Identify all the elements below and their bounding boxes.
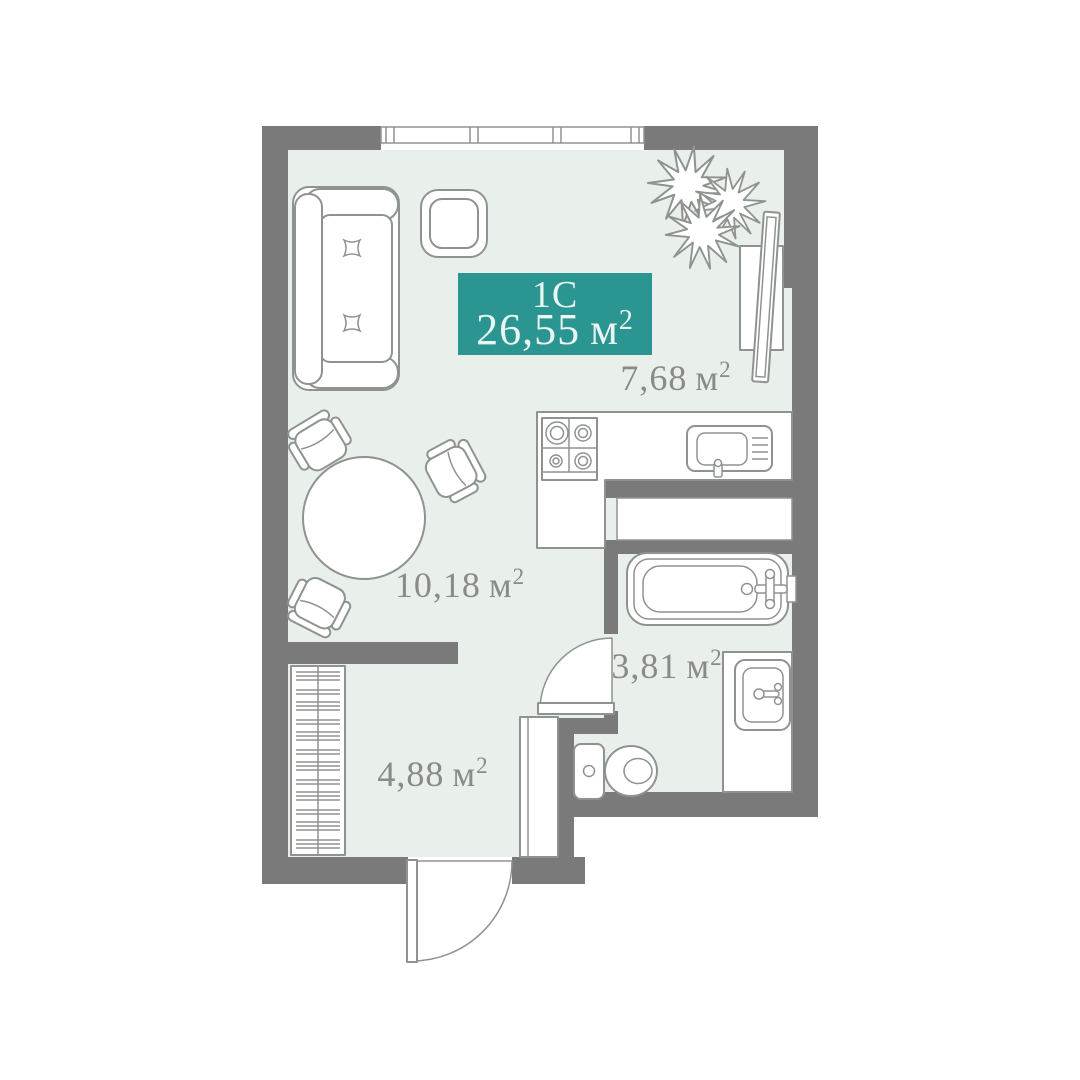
room-area-label-living: 10,18м2 — [395, 564, 525, 605]
room-area-label-kitchen-living: 7,68м2 — [620, 357, 731, 398]
room-area-label-bathroom: 3,81м2 — [611, 645, 722, 686]
stove-icon — [542, 418, 597, 480]
wall-segment — [644, 126, 818, 150]
wall-segment — [512, 857, 585, 884]
bathtub — [627, 553, 796, 625]
vanity — [723, 652, 792, 792]
washbasin-icon — [735, 660, 790, 730]
wall-segment — [604, 554, 618, 634]
unit-badge: 1С 26,55м2 — [458, 273, 652, 355]
wall-segment — [792, 268, 818, 817]
wall-segment — [604, 540, 792, 554]
door-leaf — [538, 703, 614, 714]
kitchen-sink-icon — [687, 426, 772, 477]
sofa — [293, 187, 399, 390]
door-leaf — [407, 860, 417, 962]
wall-segment — [262, 126, 381, 150]
window — [381, 127, 644, 143]
wall-segment — [784, 150, 818, 268]
wall-segment — [556, 718, 618, 734]
table-top — [303, 457, 425, 579]
toilet-icon — [574, 744, 657, 799]
entrance-door — [407, 860, 512, 962]
floor-plan-drawing: 1С 26,55м2 7,68м2 10,18м2 3,81м2 4,88м2 — [0, 0, 1080, 1080]
door-swing-arc — [412, 861, 512, 961]
ventilation-duct — [617, 498, 792, 540]
wall-segment — [288, 642, 458, 664]
room-area-label-hallway: 4,88м2 — [377, 753, 488, 794]
unit-total-area: 26,55м2 — [476, 305, 634, 354]
shaft-column — [520, 717, 558, 857]
wardrobe-closet — [291, 666, 345, 855]
wall-segment — [262, 150, 288, 884]
floor-plan: 1С 26,55м2 7,68м2 10,18м2 3,81м2 4,88м2 — [0, 0, 1080, 1080]
side-table — [421, 190, 487, 257]
